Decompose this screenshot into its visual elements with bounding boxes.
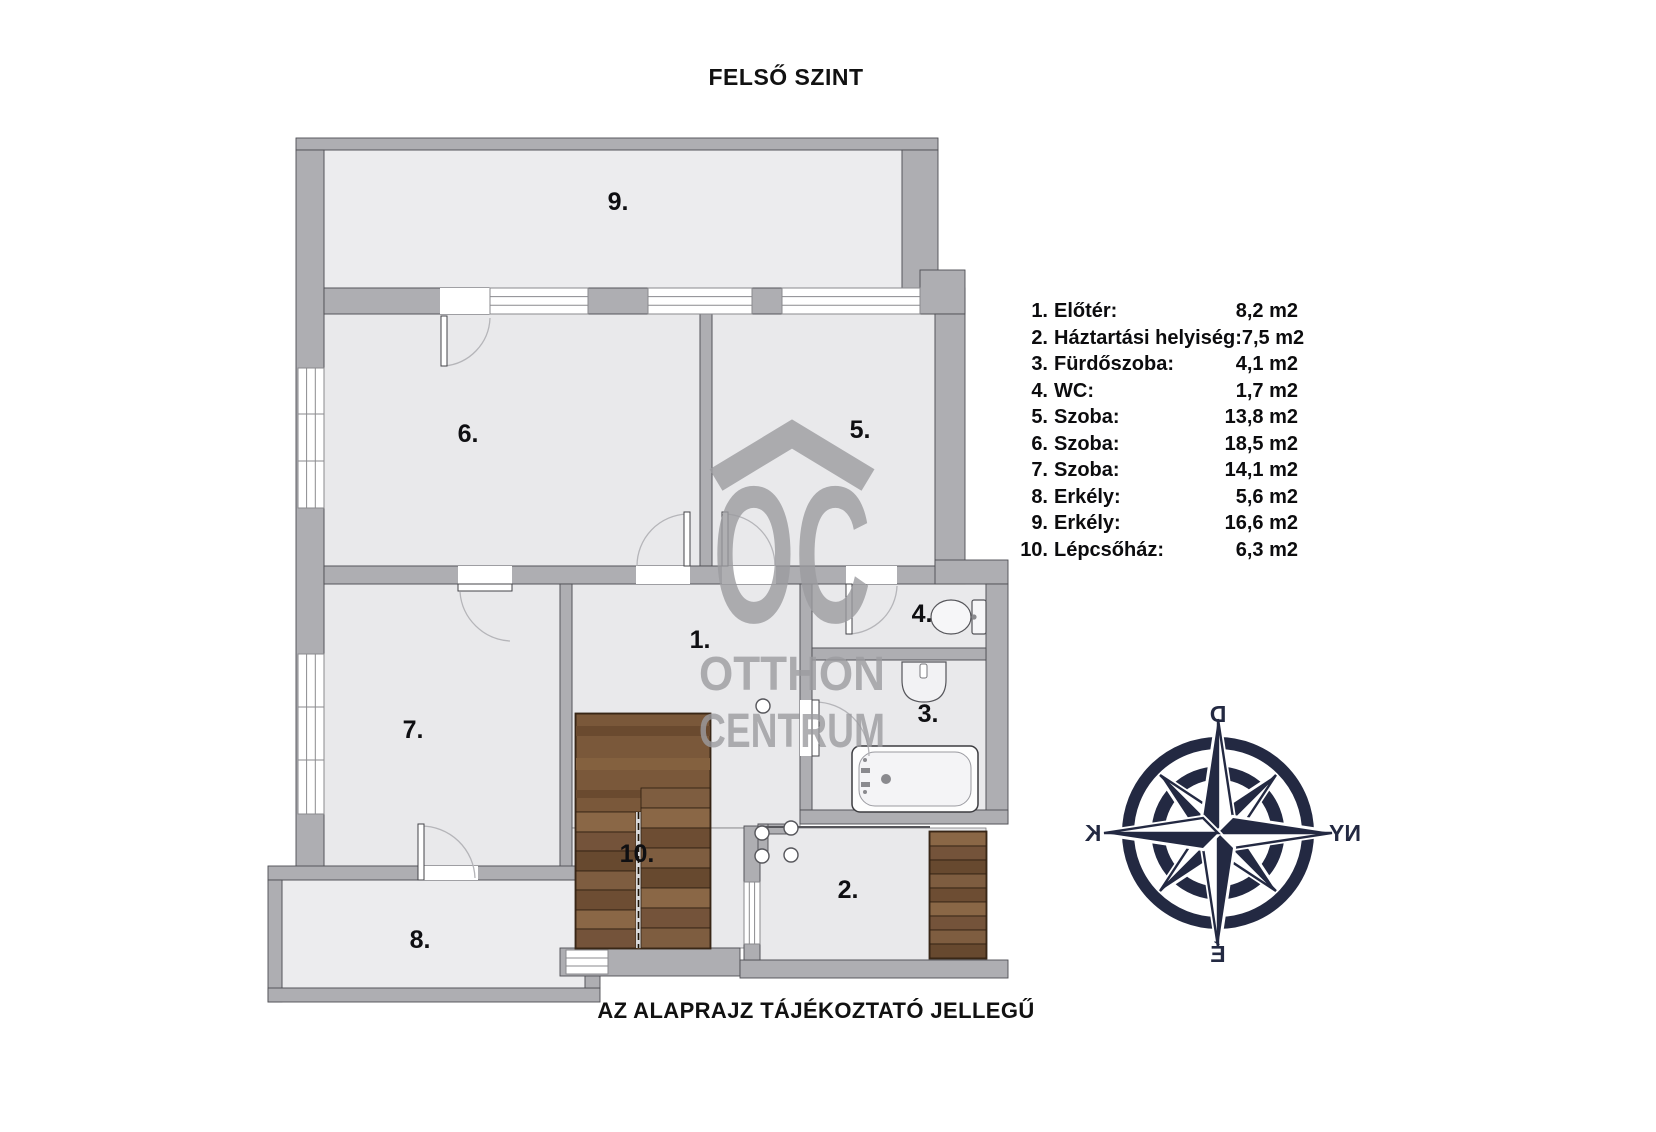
compass-label-west: NY xyxy=(1329,820,1361,846)
legend-label: WC: xyxy=(1054,380,1236,403)
legend-num: 8. xyxy=(1012,486,1054,509)
room-label-2: 2. xyxy=(838,876,859,904)
room-label-5: 5. xyxy=(850,416,871,444)
watermark-oc: OC xyxy=(713,446,871,664)
legend-row: 1. Előtér: 8,2 m2 xyxy=(1012,300,1298,327)
legend-area: 13,8 m2 xyxy=(1225,406,1298,429)
sink-icon xyxy=(902,662,946,702)
legend-area: 8,2 m2 xyxy=(1236,300,1298,323)
toilet-icon xyxy=(931,600,986,634)
legend-label: Fürdőszoba: xyxy=(1054,353,1236,376)
legend-area: 5,6 m2 xyxy=(1236,486,1298,509)
legend-row: 3. Fürdőszoba: 4,1 m2 xyxy=(1012,353,1298,380)
room-legend: 1. Előtér: 8,2 m2 2. Háztartási helyiség… xyxy=(1012,300,1298,565)
room-label-9: 9. xyxy=(608,188,629,216)
window-bottom xyxy=(566,950,608,974)
watermark-logo: OC OTTHON CENTRUM xyxy=(699,434,885,758)
compass-label-north: É xyxy=(1210,940,1225,967)
room-9-floor xyxy=(324,150,902,288)
legend-label: Lépcsőház: xyxy=(1054,539,1236,562)
legend-row: 9. Erkély: 16,6 m2 xyxy=(1012,512,1298,539)
watermark-line2: CENTRUM xyxy=(699,705,885,758)
window-band-3 xyxy=(782,288,920,314)
legend-row: 4. WC: 1,7 m2 xyxy=(1012,380,1298,407)
footer-disclaimer: AZ ALAPRAJZ TÁJÉKOZTATÓ JELLEGŰ xyxy=(597,998,1034,1024)
legend-row: 6. Szoba: 18,5 m2 xyxy=(1012,433,1298,460)
legend-row: 5. Szoba: 13,8 m2 xyxy=(1012,406,1298,433)
legend-num: 3. xyxy=(1012,353,1054,376)
legend-label: Háztartási helyiség: xyxy=(1054,327,1242,350)
legend-label: Erkély: xyxy=(1054,486,1236,509)
room-6-floor xyxy=(324,314,700,566)
window-left-room6 xyxy=(298,368,324,508)
legend-num: 9. xyxy=(1012,512,1054,535)
legend-label: Szoba: xyxy=(1054,406,1225,429)
legend-area: 16,6 m2 xyxy=(1225,512,1298,535)
legend-area: 1,7 m2 xyxy=(1236,380,1298,403)
window-band-2 xyxy=(648,288,752,314)
watermark-line1: OTTHON xyxy=(699,648,885,701)
floor-plan-page: FELSŐ SZINT xyxy=(0,0,1656,1132)
room-label-10: 10. xyxy=(620,840,655,868)
legend-area: 6,3 m2 xyxy=(1236,539,1298,562)
staircase-room10 xyxy=(575,713,711,949)
legend-num: 1. xyxy=(1012,300,1054,323)
room-label-3: 3. xyxy=(918,700,939,728)
legend-area: 4,1 m2 xyxy=(1236,353,1298,376)
legend-label: Erkély: xyxy=(1054,512,1225,535)
staircase-room2 xyxy=(929,831,987,959)
room-label-7: 7. xyxy=(403,716,424,744)
legend-label: Szoba: xyxy=(1054,459,1225,482)
legend-num: 6. xyxy=(1012,433,1054,456)
legend-area: 14,1 m2 xyxy=(1225,459,1298,482)
room-8-floor xyxy=(282,880,585,988)
window-band-1 xyxy=(490,288,588,314)
compass-label-east: K xyxy=(1084,820,1101,846)
legend-row: 10. Lépcsőház: 6,3 m2 xyxy=(1012,539,1298,566)
room-label-1: 1. xyxy=(690,626,711,654)
legend-area: 18,5 m2 xyxy=(1225,433,1298,456)
legend-num: 7. xyxy=(1012,459,1054,482)
legend-area: 7,5 m2 xyxy=(1242,327,1304,350)
compass-label-south: D xyxy=(1210,701,1227,727)
legend-num: 5. xyxy=(1012,406,1054,429)
legend-row: 7. Szoba: 14,1 m2 xyxy=(1012,459,1298,486)
legend-num: 4. xyxy=(1012,380,1054,403)
legend-row: 2. Háztartási helyiség: 7,5 m2 xyxy=(1012,327,1298,354)
compass-rose-icon: D K NY É xyxy=(1084,701,1361,967)
window-stairhall-room2 xyxy=(744,882,760,944)
floor-plan-drawing: OC OTTHON CENTRUM 9. 6. 5. 1. 4. 3. 7. 8… xyxy=(0,0,1656,1132)
legend-label: Szoba: xyxy=(1054,433,1225,456)
room-7-floor xyxy=(324,584,560,866)
room-label-4: 4. xyxy=(912,600,933,628)
legend-row: 8. Erkély: 5,6 m2 xyxy=(1012,486,1298,513)
room-label-6: 6. xyxy=(458,420,479,448)
room-label-8: 8. xyxy=(410,926,431,954)
window-left-room7 xyxy=(298,654,324,814)
legend-num: 2. xyxy=(1012,327,1054,350)
legend-label: Előtér: xyxy=(1054,300,1236,323)
legend-num: 10. xyxy=(1012,539,1054,562)
